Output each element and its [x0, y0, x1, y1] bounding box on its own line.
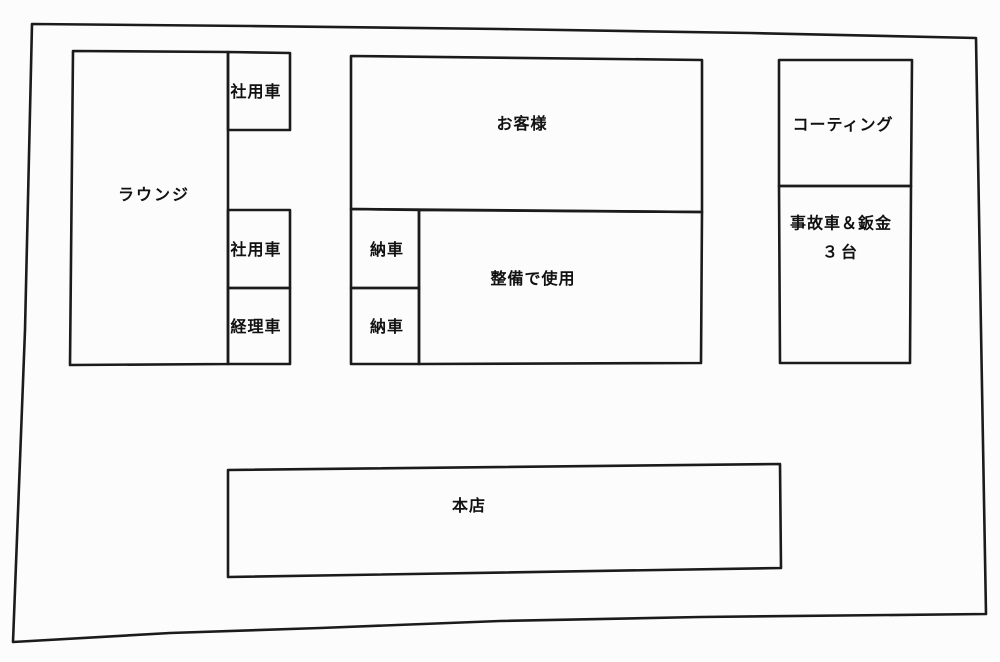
lounge-label: ラウンジ	[118, 181, 190, 205]
company-car-mid-label: 社用車	[230, 236, 281, 260]
floor-plan-drawing	[0, 0, 1000, 662]
customer-box	[351, 56, 702, 212]
coating-label: コーティング	[792, 111, 893, 135]
delivery-bottom-label: 納車	[370, 313, 404, 337]
main-store-label: 本店	[452, 492, 486, 516]
customer-label: お客様	[496, 110, 547, 134]
accounting-car-label: 経理車	[230, 313, 281, 337]
delivery-top-label: 納車	[370, 236, 404, 260]
accident-bodywork-label-line1: 事故車＆鈑金	[790, 214, 892, 233]
lounge-box	[70, 51, 228, 365]
maintenance-label: 整備で使用	[490, 265, 575, 289]
layout-diagram-page: ラウンジ 社用車 社用車 経理車 お客様 納車 納車 整備で使用 コーティング …	[0, 0, 1000, 662]
accident-bodywork-label: 事故車＆鈑金 ３台	[790, 210, 892, 263]
company-car-top-label: 社用車	[230, 78, 281, 102]
accident-bodywork-label-line2: ３台	[790, 239, 892, 263]
main-store-box	[228, 464, 781, 577]
